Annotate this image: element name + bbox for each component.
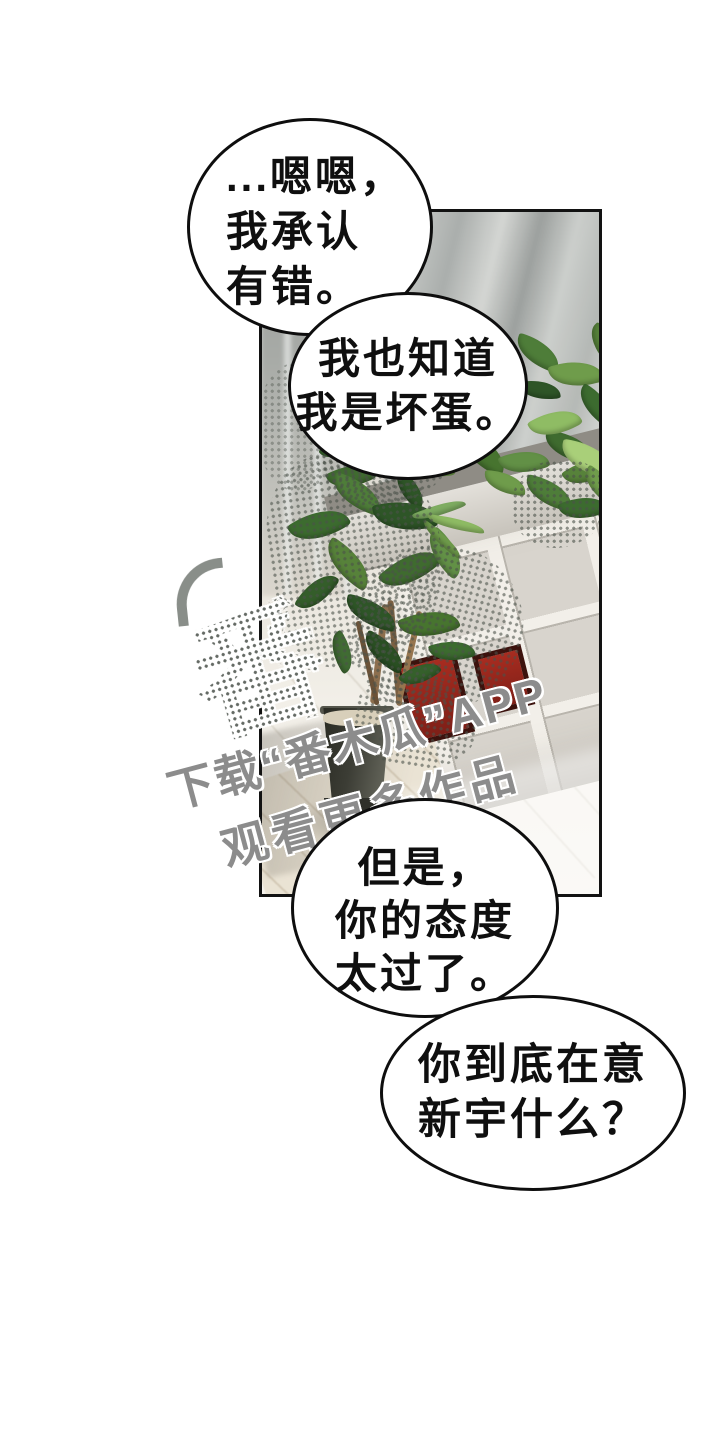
bubble-text-line: 你到底在意 (418, 1038, 648, 1093)
halftone-shadow (512, 460, 602, 548)
bubble-text-line: 太过了。 (335, 947, 515, 1000)
bubble-text-line: 我也知道 (318, 332, 498, 386)
bubble-text-line: 我承认 (226, 204, 361, 259)
speech-bubble-3: 但是， 你的态度 太过了。 (291, 798, 559, 1018)
bubble-text-line: 有错。 (226, 259, 361, 314)
speech-bubble-2: 我也知道 我是坏蛋。 (288, 292, 528, 480)
bubble-text-line: 但是， (357, 841, 492, 894)
leaf (583, 322, 602, 362)
speech-bubble-4: 你到底在意 新宇什么？ (380, 995, 686, 1191)
bubble-text-line: ...嗯嗯， (226, 149, 405, 204)
bubble-text-line: 新宇什么？ (418, 1093, 648, 1148)
bubble-text-line: 我是坏蛋。 (295, 386, 520, 440)
comic-page: 番 下载“番木瓜”APP 观看更多作品 ...嗯嗯， 我承认 有错。 我也知道 … (0, 0, 720, 1440)
logo-sprout-curl-icon (172, 558, 228, 627)
bubble-text-line: 你的态度 (335, 894, 515, 947)
